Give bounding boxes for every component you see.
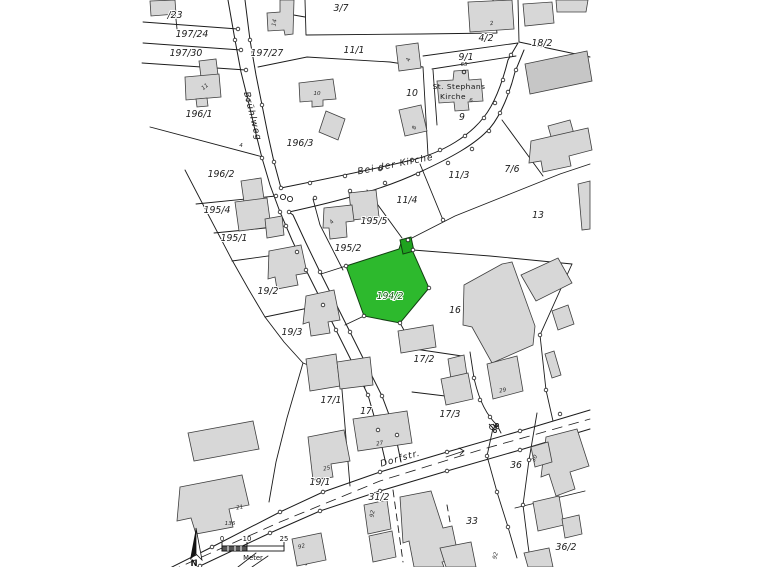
parcel-label: 10: [406, 88, 418, 99]
survey-point: [521, 503, 525, 507]
scale-tick-25: 25: [280, 535, 289, 543]
survey-point: [278, 510, 282, 514]
parcel-label: 17: [360, 406, 372, 417]
survey-point: [318, 509, 322, 513]
survey-point: [272, 160, 276, 164]
survey-point: [493, 101, 497, 105]
survey-point: [239, 48, 243, 52]
parcel-label: 11/4: [397, 195, 418, 206]
church-label: Kirche: [440, 92, 466, 101]
survey-point: [284, 224, 288, 228]
survey-point: [244, 68, 248, 72]
street-label: Bei der Kirche: [357, 153, 435, 178]
survey-point: [514, 68, 518, 72]
cadastral-map: /23197/24197/30196/1196/2197/273/711/14/…: [0, 0, 768, 567]
survey-point: [366, 393, 370, 397]
survey-point: [268, 531, 272, 535]
survey-point: [233, 38, 237, 42]
survey-point: [478, 398, 482, 402]
survey-point: [380, 394, 384, 398]
survey-point: [260, 103, 264, 107]
survey-point: [544, 388, 548, 392]
survey-point: [518, 429, 522, 433]
parcel-label: 11/1: [344, 45, 365, 56]
survey-point: [406, 238, 410, 242]
parcel-label: 31/2: [369, 492, 390, 503]
survey-point: [445, 450, 449, 454]
house-number-label: 21: [236, 504, 244, 511]
survey-point: [506, 525, 510, 529]
parcel-label: 19/1: [310, 477, 331, 488]
scale-unit-label: Meter: [243, 554, 263, 562]
parcel-label: 19/3: [282, 327, 303, 338]
cadastral-map-page: /23197/24197/30196/1196/2197/273/711/14/…: [0, 0, 768, 567]
parcel-label: 195/1: [221, 233, 248, 244]
house-number-label: 4: [239, 143, 243, 149]
street-label: Dorfstr.: [379, 449, 421, 470]
survey-point: [445, 469, 449, 473]
survey-point: [348, 330, 352, 334]
survey-point: [295, 250, 299, 254]
survey-point: [304, 268, 308, 272]
survey-point: [472, 376, 476, 380]
scale-bar: 0 10 25 Meter: [220, 535, 288, 562]
survey-point: [313, 196, 317, 200]
survey-point: [274, 194, 278, 198]
survey-point: [376, 428, 380, 432]
north-label: N: [190, 559, 197, 567]
parcel-label: 196/2: [208, 169, 235, 180]
parcel-label: 11/3: [449, 170, 470, 181]
parcel-label: /23: [167, 10, 183, 21]
survey-point: [495, 490, 499, 494]
church-label: St. Stephans: [433, 82, 486, 91]
survey-point: [383, 181, 387, 185]
highlighted-parcel-label: 194/2: [377, 291, 404, 302]
survey-point: [348, 189, 352, 193]
survey-point: [321, 490, 325, 494]
survey-point: [498, 111, 502, 115]
survey-point: [485, 454, 489, 458]
survey-point: [482, 116, 486, 120]
parcel-label: 17/3: [440, 409, 461, 420]
parcel-label: 3/7: [334, 3, 349, 14]
north-arrow: N: [190, 528, 202, 567]
parcel-label: 197/27: [251, 48, 284, 59]
survey-point: [343, 174, 347, 178]
parcel-label: 18/2: [532, 38, 553, 49]
tree-symbol: [287, 196, 292, 201]
survey-point: [260, 156, 264, 160]
parcel-label: 19/2: [258, 286, 279, 297]
parcel-label: 9: [459, 112, 465, 123]
survey-point: [236, 27, 240, 31]
house-number-label: 92: [492, 551, 500, 560]
survey-point: [318, 270, 322, 274]
parcel-label: 196/3: [287, 138, 314, 149]
parcel-label: 33: [466, 516, 478, 527]
survey-point: [411, 248, 415, 252]
survey-point: [509, 53, 513, 57]
parcel-label: 197/30: [170, 48, 203, 59]
survey-point: [362, 314, 366, 318]
survey-point: [278, 210, 282, 214]
scale-tick-0: 0: [220, 535, 224, 543]
parcel-label: 195/5: [361, 216, 388, 227]
survey-point: [308, 181, 312, 185]
survey-point: [446, 161, 450, 165]
survey-point: [427, 286, 431, 290]
parcel-label: 4/2: [479, 33, 494, 44]
house-number-label: 65: [460, 62, 468, 68]
survey-point: [487, 129, 491, 133]
parcel-label: 17/2: [414, 354, 435, 365]
survey-point: [558, 412, 562, 416]
parcel-label: 195/2: [335, 243, 362, 254]
survey-point: [210, 545, 214, 549]
parcel-label: 16: [449, 305, 461, 316]
parcel-label: 197/24: [176, 29, 209, 40]
house-number-label: 10: [313, 91, 321, 97]
street-bruehlweg: [228, 0, 386, 464]
survey-point: [334, 328, 338, 332]
survey-point: [441, 218, 445, 222]
parcel-label: 196/1: [186, 109, 213, 120]
parcel-label: 36/2: [556, 542, 577, 553]
survey-point: [518, 448, 522, 452]
survey-point: [378, 470, 382, 474]
survey-point: [395, 433, 399, 437]
parcel-label: 13: [532, 210, 544, 221]
survey-point: [398, 321, 402, 325]
survey-point: [344, 264, 348, 268]
survey-point: [538, 333, 542, 337]
parcel-label: 195/4: [204, 205, 231, 216]
tree-symbol: [280, 194, 285, 199]
house-number-label: 136: [225, 521, 236, 527]
survey-point: [463, 134, 467, 138]
parcel-label: 36: [510, 460, 522, 471]
street-label: Brühlweg: [241, 91, 263, 142]
house-number-label: 6: [469, 98, 473, 104]
scale-tick-10: 10: [243, 535, 252, 543]
survey-point: [506, 90, 510, 94]
survey-point: [501, 78, 505, 82]
survey-point: [488, 415, 492, 419]
survey-point: [438, 148, 442, 152]
survey-point: [287, 210, 291, 214]
survey-point: [248, 38, 252, 42]
parcel-label: 17/1: [321, 395, 342, 406]
survey-point: [279, 186, 283, 190]
parcel-label: 7/6: [505, 164, 520, 175]
survey-point: [416, 172, 420, 176]
survey-point: [321, 303, 325, 307]
survey-point: [470, 147, 474, 151]
